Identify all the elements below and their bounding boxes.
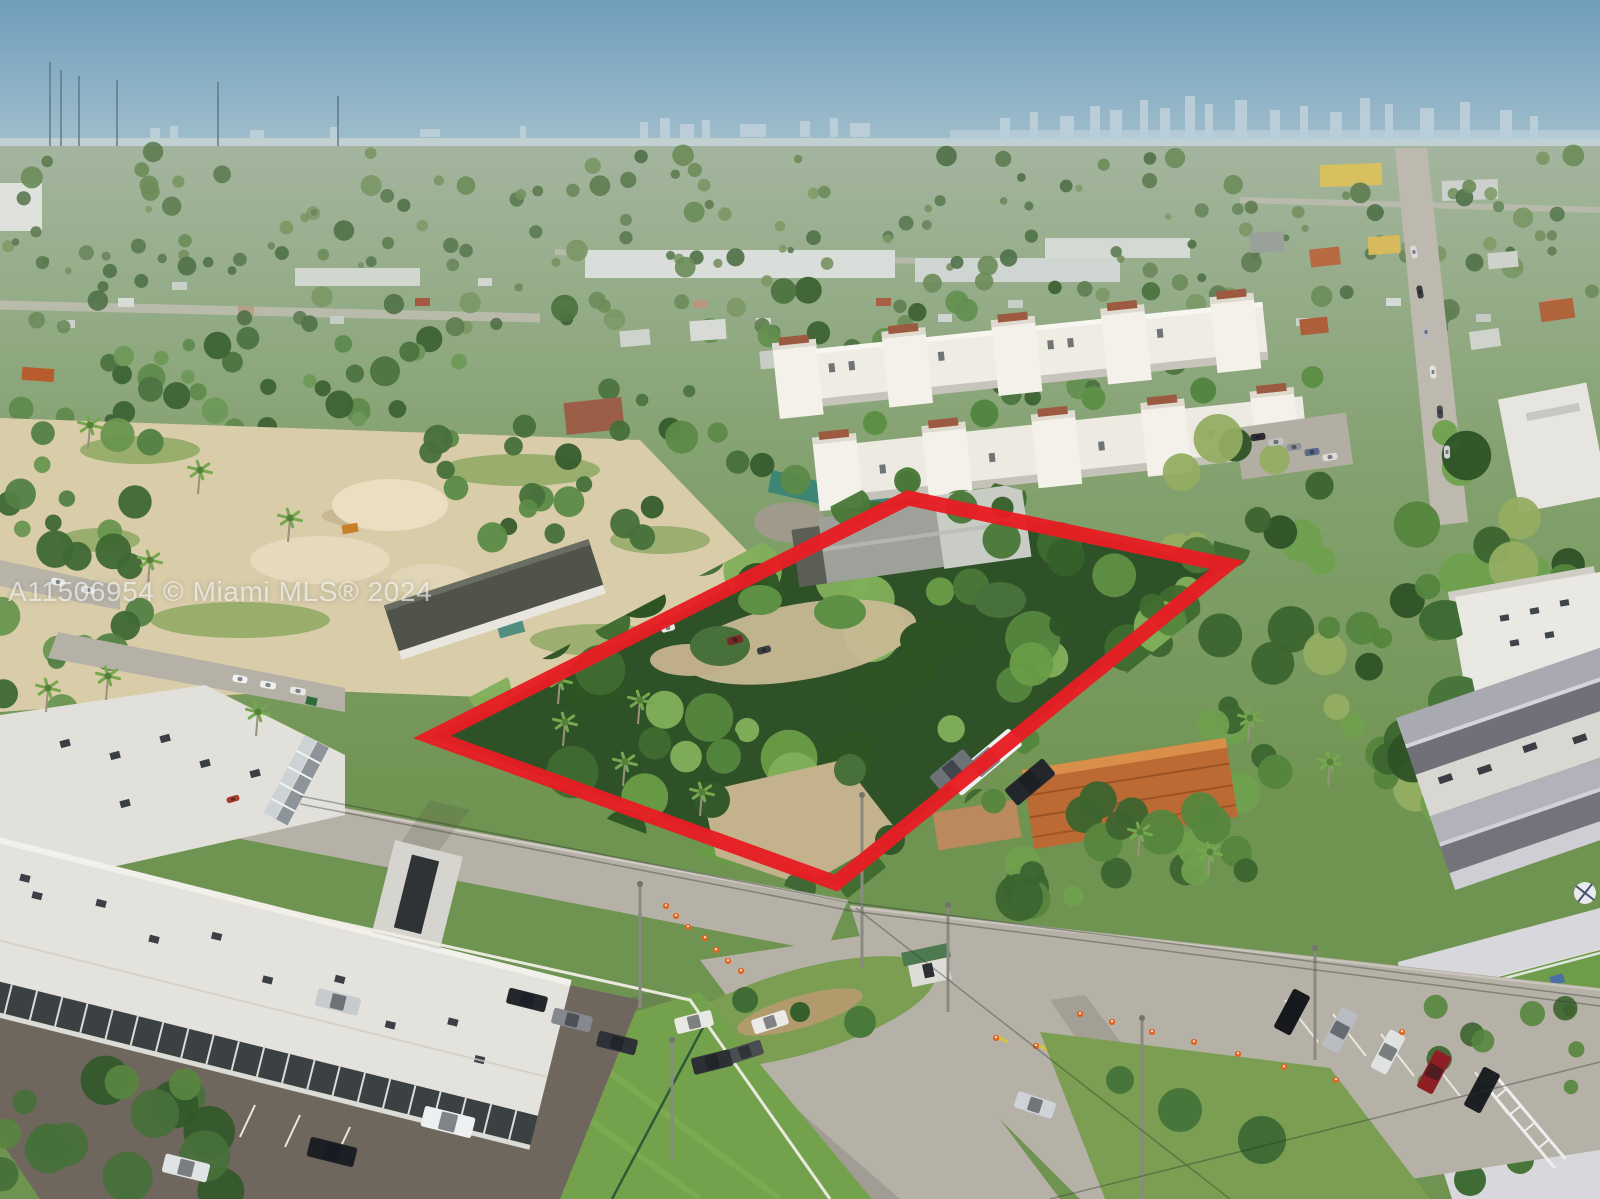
aerial-photo-canvas [0,0,1600,1199]
aerial-photo: A11506954 © Miami MLS® 2024 [0,0,1600,1199]
